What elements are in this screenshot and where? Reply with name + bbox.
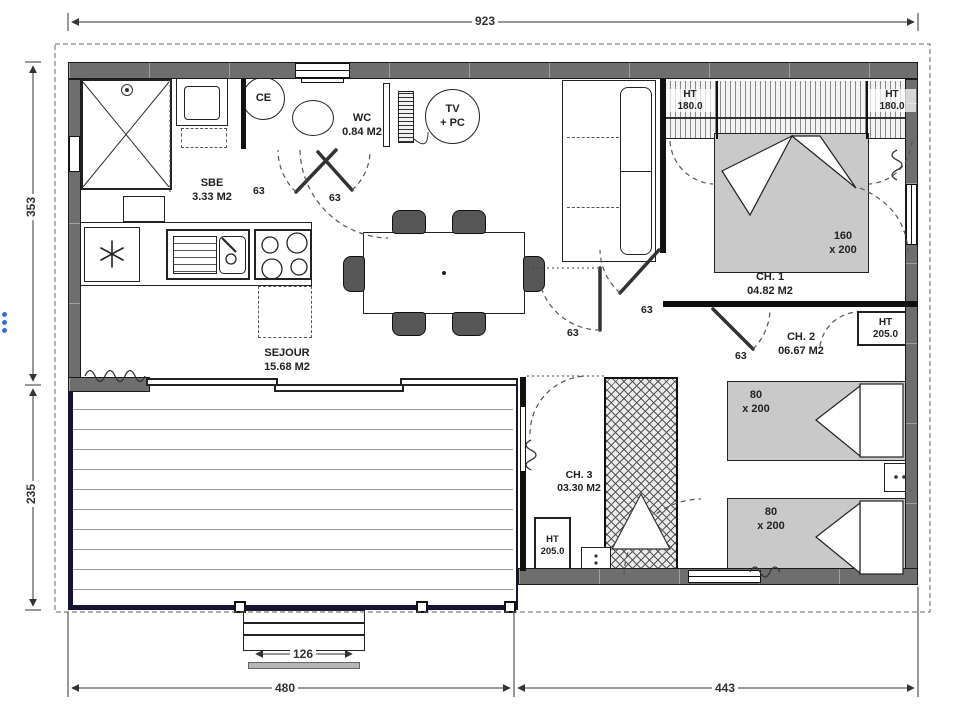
tv-pc-circle: TV + PC	[425, 89, 480, 144]
terrace-post	[416, 601, 428, 613]
bed-ch2-label: 80 x 200	[733, 389, 779, 417]
water-heater: CE	[242, 77, 285, 120]
dim-bottom-left: 480	[272, 681, 298, 695]
floor-plan: CE TV + PC HT 180.0 HT 180.0 160	[0, 0, 960, 720]
sink-basin	[219, 236, 246, 274]
ch2-wardrobe-label: HT	[879, 317, 892, 329]
door-width-ch2: 63	[734, 350, 748, 362]
dim-left-upper: 353	[24, 194, 38, 220]
dim-steps-width: 126	[290, 647, 316, 661]
tv-label-line1: TV	[445, 103, 459, 117]
wall-cabinet	[123, 196, 165, 222]
terrace-post	[504, 601, 516, 613]
room-label-ch2: CH. 2 06.67 M2	[758, 331, 844, 359]
room-label-ch3: CH. 3 03.30 M2	[544, 469, 614, 495]
hood-projection	[258, 286, 312, 338]
room-label-ch1: CH. 1 04.82 M2	[726, 271, 814, 299]
wall-ch1-ch2	[663, 301, 918, 307]
bed-ch1-label: 160 x 200	[820, 230, 866, 258]
sofa-seat-line	[567, 137, 619, 138]
dining-chair	[392, 312, 426, 336]
wall-left	[68, 79, 81, 385]
dining-chair	[343, 256, 365, 292]
wall-wc	[241, 79, 246, 149]
ch1-wardrobe-divider	[716, 81, 718, 139]
terrace-steps	[243, 623, 365, 635]
water-heater-label: CE	[256, 92, 271, 106]
wall-bay-left	[68, 377, 150, 392]
vent-left	[69, 136, 80, 172]
dining-table	[363, 232, 525, 314]
door-width-ch3: 63	[566, 327, 580, 339]
dim-bottom-right: 443	[712, 681, 738, 695]
ch1-wardrobe-rail	[665, 117, 918, 119]
bed-ch3-label: 80 x 200	[748, 506, 794, 534]
window-sill	[301, 78, 344, 83]
tv-label-line2: + PC	[440, 117, 465, 131]
ch3-bunk	[604, 377, 678, 570]
dining-chair	[452, 312, 486, 336]
tv-unit	[398, 91, 414, 143]
window-ch3	[520, 406, 526, 472]
window-ch1-right	[906, 184, 917, 245]
basin-cabinet-projection	[181, 128, 227, 148]
terrace-frame	[68, 385, 518, 610]
fridge	[84, 227, 140, 282]
left-edge-marker	[2, 312, 7, 317]
room-label-sbe: SBE 3.33 M2	[168, 177, 256, 205]
terrace-steps	[243, 610, 365, 623]
sink-drainboard	[173, 236, 217, 274]
ch3-wardrobe-label: HT	[546, 534, 559, 546]
stove	[254, 229, 312, 280]
wall-top	[68, 62, 918, 79]
toilet	[292, 100, 334, 136]
window-bottom	[688, 570, 761, 583]
room-label-wc: WC 0.84 M2	[330, 112, 394, 140]
tv-wire	[413, 132, 428, 144]
dim-left-lower: 235	[24, 481, 38, 507]
door-width-ch1: 63	[640, 304, 654, 316]
sofa-cushion-divider	[621, 171, 651, 172]
ch3-wardrobe: HT 205.0	[534, 517, 571, 574]
sliding-door-panel	[146, 378, 278, 386]
door-width-sbe: 63	[252, 185, 266, 197]
steps-base	[248, 662, 360, 669]
terrace-post	[234, 601, 246, 613]
washbasin-bowl	[184, 86, 220, 120]
window-top	[295, 63, 350, 78]
dining-chair	[523, 256, 545, 292]
dining-chair	[392, 210, 426, 234]
room-label-sejour: SEJOUR 15.68 M2	[245, 347, 329, 375]
dim-overall-width: 923	[472, 14, 498, 28]
sofa-seat-line	[567, 207, 619, 208]
wall-right	[905, 79, 918, 585]
dining-chair	[452, 210, 486, 234]
sofa-backrest	[620, 87, 652, 255]
sliding-door-panel	[274, 384, 404, 392]
ch1-wardrobe-left-label: HT 180.0	[666, 89, 714, 112]
shower-tray	[81, 79, 172, 190]
door-width-wc: 63	[328, 192, 342, 204]
sink-unit	[166, 229, 250, 280]
sliding-door-panel	[400, 378, 518, 386]
ch1-wardrobe-right-label: HT 180.0	[868, 89, 916, 112]
